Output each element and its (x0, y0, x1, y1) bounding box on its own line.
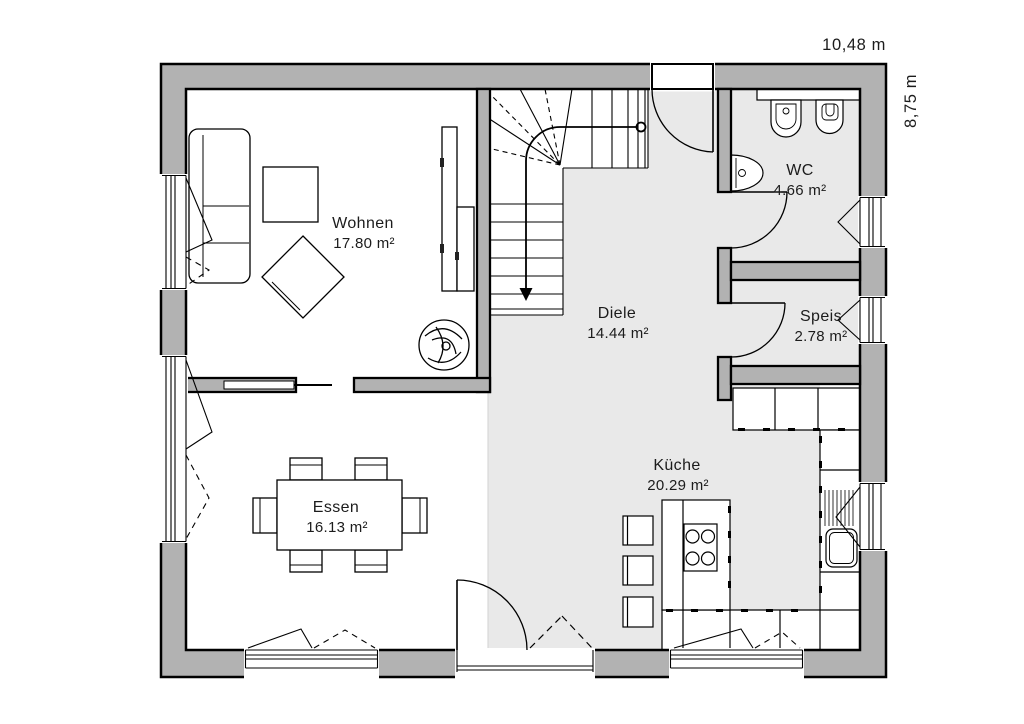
floor-plan: Wohnen 17.80 m² Diele 14.44 m² WC 4.66 m… (0, 0, 1024, 724)
dining-chair-icon (253, 498, 277, 533)
bar-stools (623, 516, 653, 627)
dining-chair-icon (290, 550, 322, 572)
wall-pier-speis-kueche (718, 357, 731, 400)
dimension-height: 8,75 m (902, 74, 920, 128)
label-essen: Essen (313, 499, 359, 516)
label-speis: Speis (800, 308, 842, 325)
label-wc: WC (786, 162, 813, 179)
label-kueche: Küche (653, 457, 700, 474)
wall-speis-kueche (731, 366, 860, 384)
sliding-door-pocket (224, 381, 294, 389)
kitchen-top-run (733, 388, 860, 430)
floor-diele-upper (563, 168, 718, 315)
label-speis-area: 2.78 m² (795, 328, 848, 345)
floor-plan-drawing: Wohnen 17.80 m² Diele 14.44 m² WC 4.66 m… (0, 0, 1024, 724)
label-wohnen: Wohnen (332, 215, 394, 232)
floor-wc-threshold (718, 192, 731, 248)
label-diele: Diele (598, 305, 636, 322)
bidet-icon (771, 100, 801, 137)
toilet-icon (816, 100, 843, 134)
sink-basin (830, 533, 854, 564)
terrace-opening (455, 648, 595, 679)
floor-entry (648, 89, 718, 168)
label-wohnen-area: 17.80 m² (333, 235, 395, 252)
wall-wohnen-essen-right (354, 378, 490, 392)
dining-chair-icon (355, 550, 387, 572)
dining-chair-icon (290, 458, 322, 480)
wall-diele-wc (718, 89, 731, 192)
label-diele-area: 14.44 m² (587, 325, 649, 342)
floor-speis-threshold (718, 303, 731, 357)
label-essen-area: 16.13 m² (306, 519, 368, 536)
dimension-width: 10,48 m (822, 36, 886, 54)
label-kueche-area: 20.29 m² (647, 477, 709, 494)
wall-wohnen-diele (477, 89, 490, 392)
wall-wc-speis (731, 262, 860, 280)
kitchen-right-run (820, 430, 860, 610)
wall-pier-wc-speis (718, 248, 731, 303)
entrance-frame (652, 64, 713, 89)
dining-chair-icon (355, 458, 387, 480)
dining-chair-icon (402, 498, 427, 533)
wc-shelf (757, 89, 860, 100)
coffee-table-icon (263, 167, 318, 222)
label-wc-area: 4.66 m² (774, 182, 827, 199)
